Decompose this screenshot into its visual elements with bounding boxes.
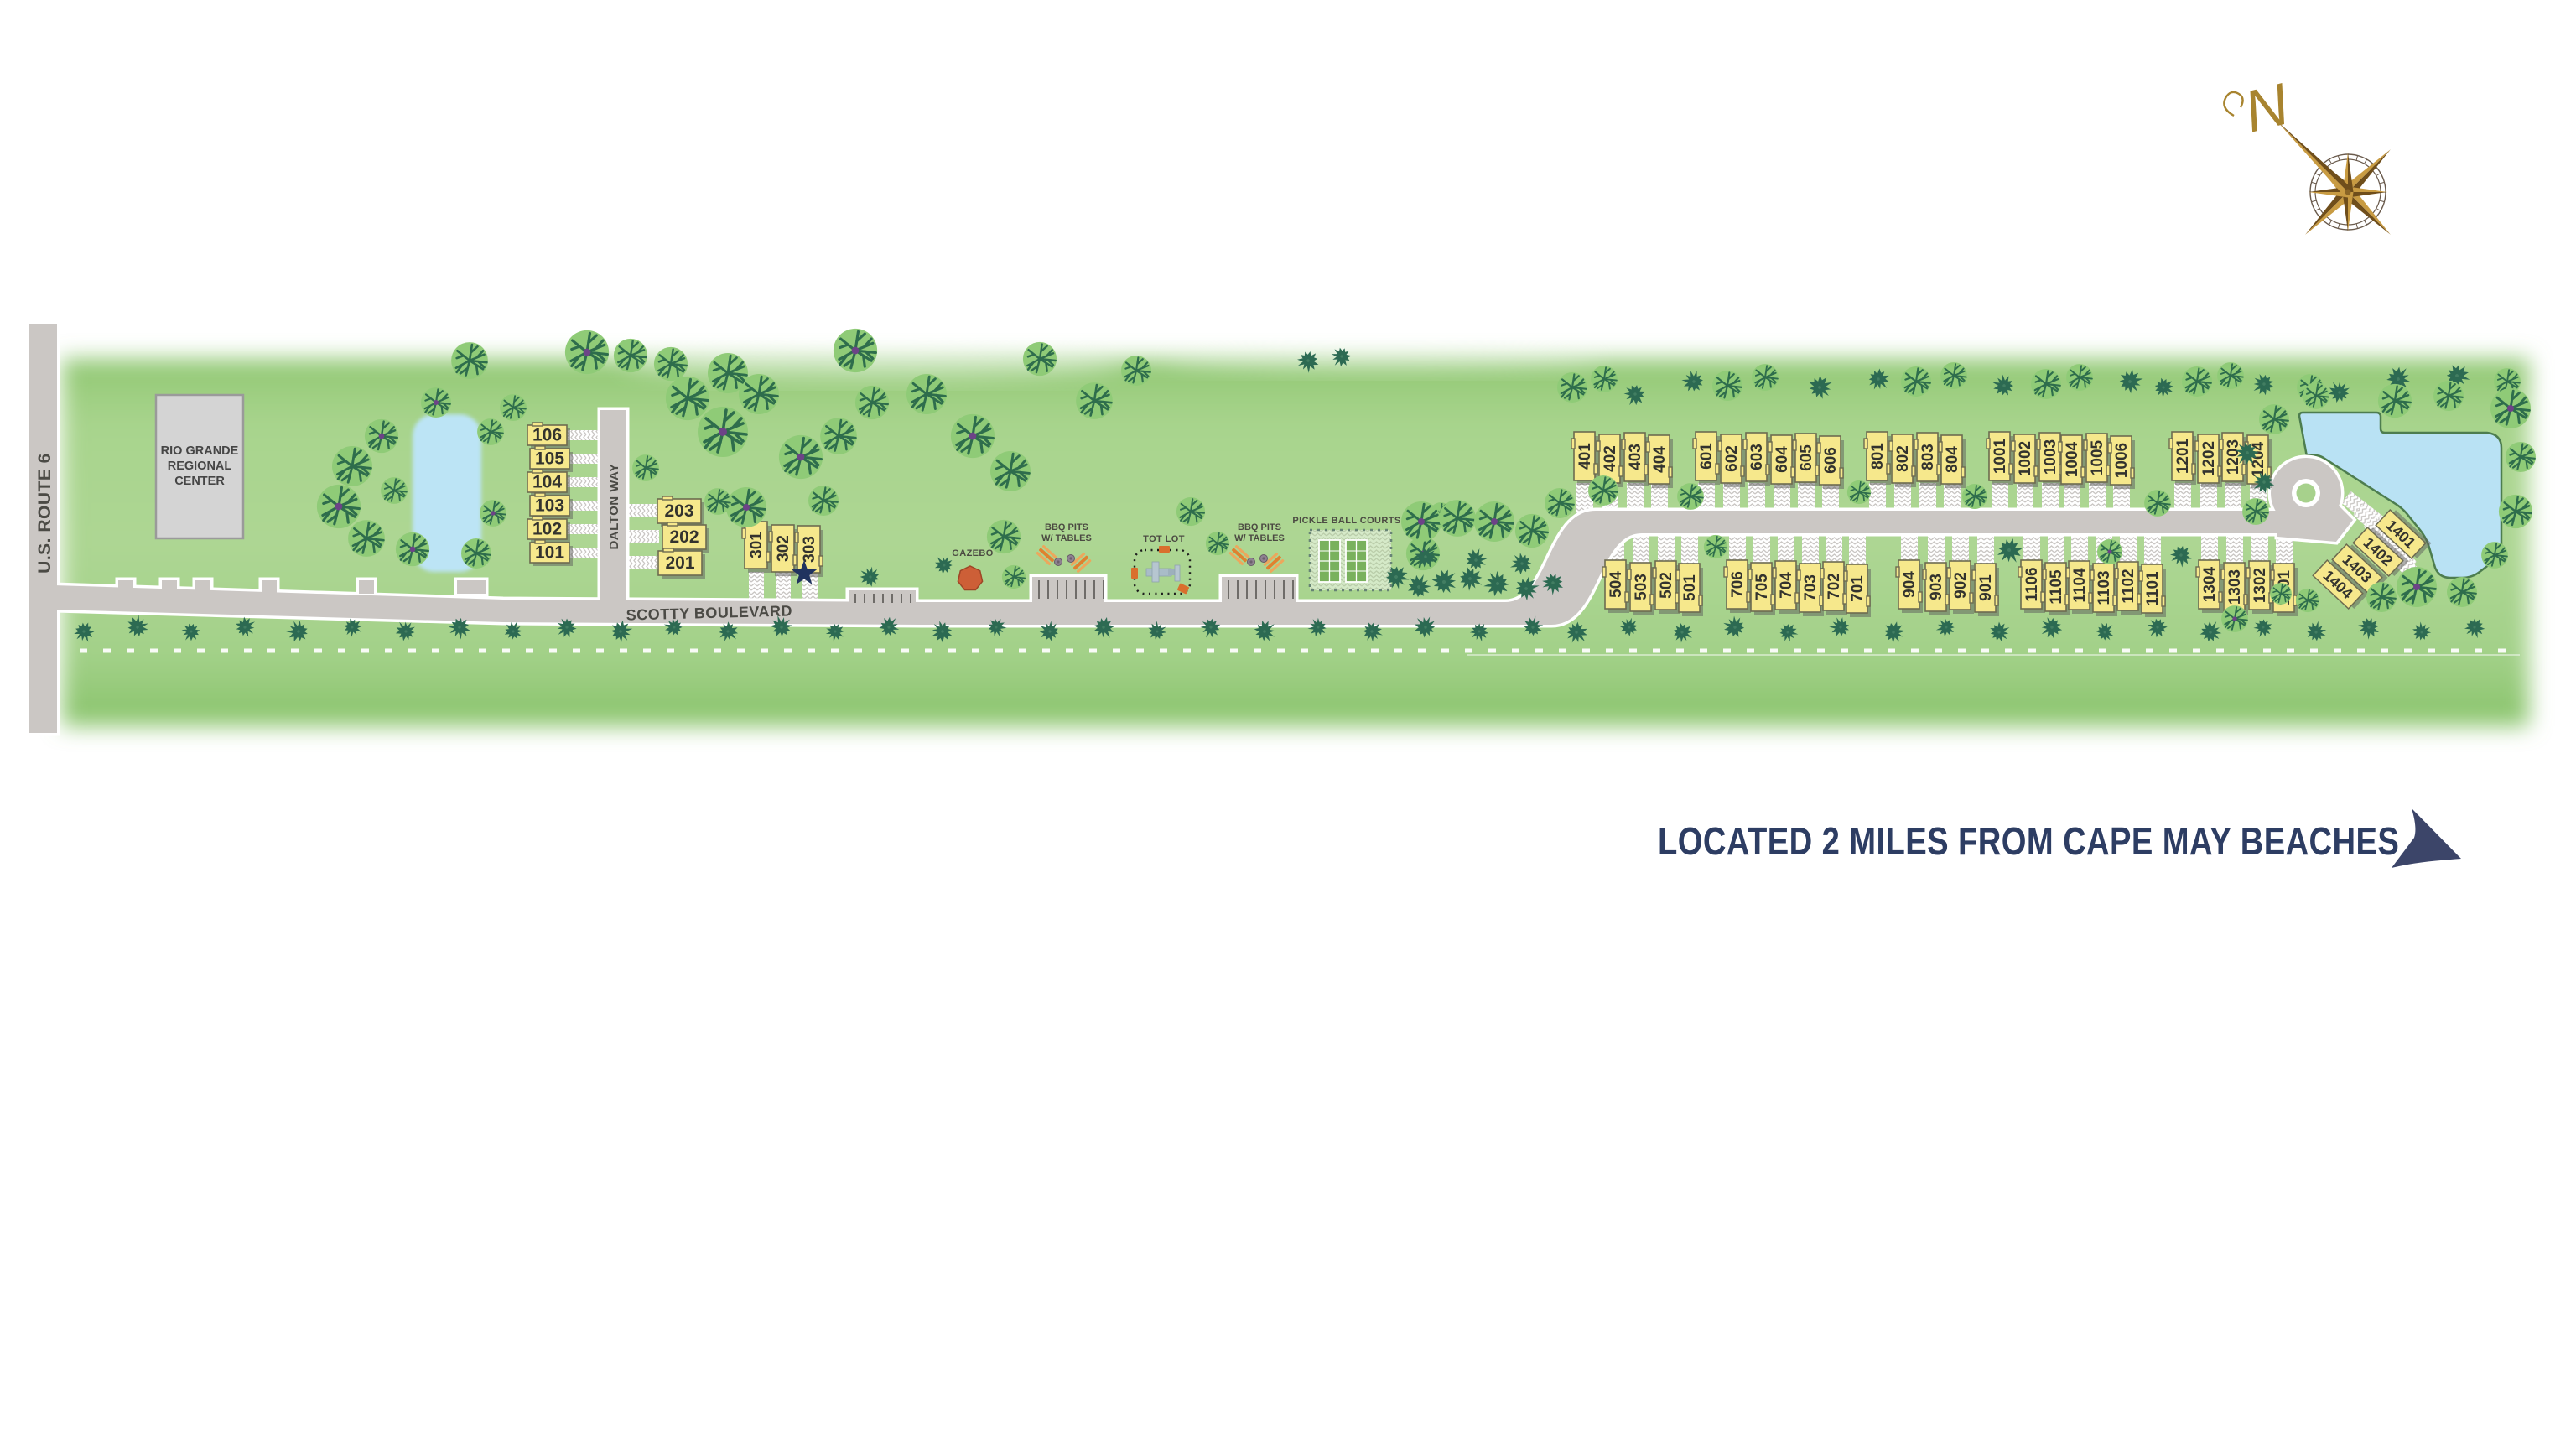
svg-text:BBQ PITS: BBQ PITS bbox=[1238, 522, 1281, 532]
svg-text:GAZEBO: GAZEBO bbox=[952, 548, 994, 558]
svg-text:904: 904 bbox=[1901, 571, 1919, 598]
svg-text:1303: 1303 bbox=[2226, 569, 2244, 605]
svg-text:106: 106 bbox=[532, 426, 562, 445]
svg-text:1104: 1104 bbox=[2071, 568, 2089, 603]
svg-text:104: 104 bbox=[532, 473, 562, 492]
svg-text:802: 802 bbox=[1894, 445, 1912, 472]
svg-text:301: 301 bbox=[748, 532, 766, 558]
svg-text:704: 704 bbox=[1778, 572, 1795, 599]
svg-text:103: 103 bbox=[535, 496, 564, 516]
svg-text:403: 403 bbox=[1627, 444, 1644, 470]
svg-text:606: 606 bbox=[1822, 447, 1840, 474]
svg-text:401: 401 bbox=[1576, 443, 1594, 470]
svg-text:1106: 1106 bbox=[2023, 567, 2041, 601]
svg-text:1204: 1204 bbox=[2250, 441, 2267, 477]
svg-text:CENTER: CENTER bbox=[174, 475, 225, 488]
svg-text:602: 602 bbox=[1723, 445, 1741, 472]
svg-text:1302: 1302 bbox=[2251, 568, 2269, 603]
svg-text:203: 203 bbox=[664, 501, 693, 521]
svg-text:604: 604 bbox=[1774, 446, 1791, 473]
svg-text:302: 302 bbox=[775, 535, 792, 562]
svg-text:1002: 1002 bbox=[2017, 441, 2034, 476]
svg-text:1202: 1202 bbox=[2200, 441, 2218, 476]
svg-text:101: 101 bbox=[535, 543, 564, 563]
svg-text:TOT LOT: TOT LOT bbox=[1143, 534, 1185, 544]
svg-text:201: 201 bbox=[665, 553, 694, 573]
svg-text:1005: 1005 bbox=[2089, 439, 2106, 475]
svg-text:202: 202 bbox=[669, 527, 699, 547]
svg-text:1001: 1001 bbox=[1992, 438, 2009, 474]
svg-text:1105: 1105 bbox=[2048, 569, 2065, 605]
svg-text:1203: 1203 bbox=[2225, 439, 2242, 475]
svg-text:501: 501 bbox=[1681, 574, 1699, 601]
svg-text:701: 701 bbox=[1849, 575, 1867, 602]
svg-text:902: 902 bbox=[1952, 572, 1970, 599]
svg-text:PICKLE BALL COURTS: PICKLE BALL COURTS bbox=[1292, 516, 1400, 526]
svg-text:1003: 1003 bbox=[2042, 439, 2059, 475]
svg-text:504: 504 bbox=[1607, 571, 1625, 598]
svg-text:U.S. ROUTE 6: U.S. ROUTE 6 bbox=[35, 453, 55, 574]
svg-text:404: 404 bbox=[1651, 446, 1669, 473]
svg-text:1201: 1201 bbox=[2174, 438, 2192, 474]
svg-text:1102: 1102 bbox=[2120, 569, 2137, 603]
svg-text:901: 901 bbox=[1977, 574, 1995, 601]
svg-text:1101: 1101 bbox=[2144, 571, 2162, 606]
svg-text:RIO GRANDE: RIO GRANDE bbox=[161, 444, 239, 458]
svg-text:102: 102 bbox=[532, 520, 562, 539]
svg-text:702: 702 bbox=[1826, 573, 1843, 600]
svg-text:601: 601 bbox=[1698, 443, 1716, 470]
svg-text:402: 402 bbox=[1602, 445, 1619, 472]
svg-text:W/ TABLES: W/ TABLES bbox=[1234, 533, 1285, 543]
svg-text:703: 703 bbox=[1802, 574, 1820, 601]
svg-text:1103: 1103 bbox=[2096, 570, 2113, 605]
svg-text:706: 706 bbox=[1729, 571, 1747, 598]
svg-text:LOCATED 2 MILES FROM CAPE MAY: LOCATED 2 MILES FROM CAPE MAY BEACHES bbox=[1658, 820, 2399, 863]
svg-text:REGIONAL: REGIONAL bbox=[168, 460, 232, 473]
svg-text:804: 804 bbox=[1944, 446, 1961, 473]
svg-text:303: 303 bbox=[801, 536, 818, 563]
svg-text:105: 105 bbox=[535, 449, 564, 469]
svg-text:803: 803 bbox=[1919, 444, 1937, 470]
svg-text:BBQ PITS: BBQ PITS bbox=[1045, 522, 1088, 532]
svg-text:503: 503 bbox=[1633, 574, 1650, 600]
svg-text:DALTON WAY: DALTON WAY bbox=[607, 463, 621, 549]
svg-text:705: 705 bbox=[1753, 574, 1771, 600]
svg-text:801: 801 bbox=[1869, 443, 1887, 470]
svg-text:502: 502 bbox=[1658, 572, 1675, 599]
svg-text:605: 605 bbox=[1798, 444, 1815, 471]
svg-text:903: 903 bbox=[1928, 574, 1945, 600]
svg-text:603: 603 bbox=[1748, 444, 1766, 470]
svg-text:W/ TABLES: W/ TABLES bbox=[1041, 533, 1092, 543]
svg-text:1004: 1004 bbox=[2064, 441, 2081, 477]
svg-text:1304: 1304 bbox=[2201, 566, 2219, 602]
svg-text:1006: 1006 bbox=[2113, 443, 2131, 478]
